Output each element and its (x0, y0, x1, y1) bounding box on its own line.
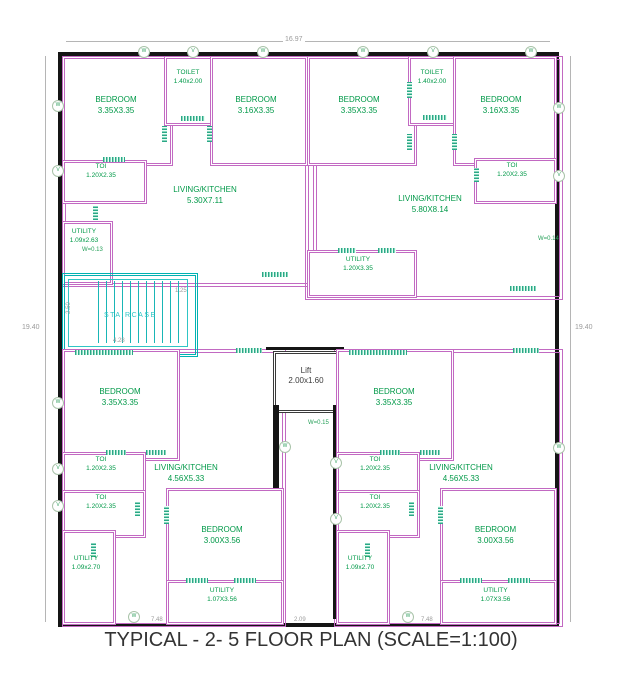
room-name: UTILITY (166, 587, 278, 596)
room-name: LIVING/KITCHEN (375, 193, 485, 204)
room-label-toi: TOI 1.20X2.35 (474, 162, 550, 179)
room-name: TOI (336, 456, 414, 465)
room-name: TOI (336, 494, 414, 503)
room-name: UTILITY (330, 555, 390, 564)
door-window-opening (103, 157, 125, 162)
grid-marker: V (187, 46, 199, 58)
room-size: 3.35X3.35 (66, 105, 166, 116)
room-utility (62, 530, 116, 625)
room-name: UTILITY (307, 256, 409, 265)
door-window-opening (349, 350, 407, 355)
room-size: 1.20X2.35 (336, 503, 414, 512)
grid-marker: V (52, 165, 64, 177)
room-name: BEDROOM (210, 94, 302, 105)
room-label-bedroom: BEDROOM 3.35X3.35 (340, 386, 448, 408)
room-size: 1.09x2.63 (59, 237, 109, 246)
door-window-opening (460, 578, 482, 583)
door-window-opening (452, 134, 457, 150)
grid-marker: V (553, 170, 565, 182)
grid-marker: W (553, 102, 565, 114)
room-name: BEDROOM (440, 524, 551, 535)
room-label-bedroom: BEDROOM 3.00X3.56 (166, 524, 278, 546)
staircase-label: STAIRCASE (104, 312, 157, 319)
wall-width-note: W=0.15 (308, 420, 329, 426)
room-size: 1.07X3.56 (166, 596, 278, 605)
door-window-opening (234, 578, 256, 583)
grid-marker: V (427, 46, 439, 58)
room-label-utility: UTILITY 1.09x2.70 (56, 555, 116, 572)
left-dimension-line (45, 56, 46, 622)
door-window-opening (438, 506, 443, 524)
lift-lobby-wall-top (266, 347, 344, 350)
room-size: 3.35X3.35 (309, 105, 409, 116)
room-label-utility: UTILITY 1.07X3.56 (166, 587, 278, 604)
room-name: LIVING/KITCHEN (130, 462, 242, 473)
room-label-living-kitchen: LIVING/KITCHEN 5.80X8.14 (375, 193, 485, 215)
room-label-toi: TOI 1.20X2.35 (336, 494, 414, 511)
grid-marker: W (402, 611, 414, 623)
grid-marker: W (138, 46, 150, 58)
wall-width-note: W=0.14 (538, 236, 559, 242)
lift-label: Lift 2.00x1.60 (273, 366, 339, 386)
room-size: 5.80X8.14 (375, 204, 485, 215)
room-label-toilet: TOILET 1.40x2.00 (404, 69, 460, 86)
door-window-opening (380, 450, 400, 455)
grid-marker: V (330, 513, 342, 525)
door-window-opening (106, 450, 126, 455)
room-size: 3.35X3.35 (340, 397, 448, 408)
room-name: TOILET (404, 69, 460, 78)
room-name: BEDROOM (66, 94, 166, 105)
door-window-opening (420, 450, 440, 455)
room-label-bedroom: BEDROOM 3.16X3.35 (210, 94, 302, 116)
room-name: BEDROOM (166, 524, 278, 535)
room-name: BEDROOM (453, 94, 549, 105)
grid-marker: W (357, 46, 369, 58)
door-window-opening (338, 248, 356, 253)
stair-depth-dimension: 2.50 (66, 301, 72, 315)
door-window-opening (207, 126, 212, 142)
room-size: 1.09x2.70 (56, 564, 116, 573)
right-dimension-line (570, 56, 571, 622)
grid-marker: W (279, 441, 291, 453)
room-size: 1.20X3.35 (307, 265, 409, 274)
room-size: 3.00X3.56 (440, 535, 551, 546)
right-dimension: 19.40 (573, 324, 595, 331)
room-name: UTILITY (59, 228, 109, 237)
top-dimension: 16.97 (283, 36, 305, 43)
door-window-opening (164, 506, 169, 524)
door-window-opening (378, 248, 396, 253)
grid-marker: V (330, 457, 342, 469)
top-dimension-line (66, 41, 550, 42)
grid-marker: W (52, 397, 64, 409)
grid-marker: W (553, 442, 565, 454)
room-size: 1.07X3.56 (440, 596, 551, 605)
room-label-toi: TOI 1.20X2.35 (62, 494, 140, 511)
drawing-title: TYPICAL - 2- 5 FLOOR PLAN (SCALE=1:100) (0, 629, 622, 652)
grid-marker: W (128, 611, 140, 623)
left-dimension: 19.40 (20, 324, 42, 331)
grid-marker: V (52, 500, 64, 512)
door-window-opening (423, 115, 447, 120)
room-size: 4.56X5.33 (405, 473, 517, 484)
room-label-utility: UTILITY 1.09x2.63 (59, 228, 109, 245)
door-window-opening (236, 348, 262, 353)
room-size: 3.16X3.35 (210, 105, 302, 116)
room-label-bedroom: BEDROOM 3.35X3.35 (309, 94, 409, 116)
room-utility (336, 530, 390, 625)
room-name: UTILITY (440, 587, 551, 596)
room-label-utility: UTILITY 1.20X3.35 (307, 256, 409, 273)
grid-marker: V (52, 463, 64, 475)
room-name: BEDROOM (309, 94, 409, 105)
room-size: 3.16X3.35 (453, 105, 549, 116)
door-window-opening (93, 206, 98, 220)
room-label-bedroom: BEDROOM 3.00X3.56 (440, 524, 551, 546)
room-label-living-kitchen: LIVING/KITCHEN 4.56X5.33 (405, 462, 517, 484)
room-size: 1.20X2.35 (62, 465, 140, 474)
room-label-utility: UTILITY 1.07X3.56 (440, 587, 551, 604)
room-name: TOI (62, 494, 140, 503)
floor-plan-canvas: 16.97 19.40 19.40 7.48 2.09 7.48 (0, 0, 622, 700)
grid-marker: W (525, 46, 537, 58)
room-size: 1.20X2.35 (62, 503, 140, 512)
door-window-opening (513, 348, 539, 353)
room-name: BEDROOM (340, 386, 448, 397)
room-name: TOI (474, 162, 550, 171)
room-name: LIVING/KITCHEN (405, 462, 517, 473)
room-size: 4.56X5.33 (130, 473, 242, 484)
room-name: LIVING/KITCHEN (150, 184, 260, 195)
room-name: Lift (273, 366, 339, 376)
room-label-living-kitchen: LIVING/KITCHEN 4.56X5.33 (130, 462, 242, 484)
door-window-opening (262, 272, 288, 277)
door-window-opening (508, 578, 530, 583)
room-size: 2.00x1.60 (273, 376, 339, 386)
grid-marker: W (52, 100, 64, 112)
room-size: 3.00X3.56 (166, 535, 278, 546)
room-name: TOI (62, 456, 140, 465)
room-label-toi: TOI 1.20X2.35 (62, 163, 140, 180)
wall-width-note: W=0.13 (82, 247, 103, 253)
grid-marker: W (257, 46, 269, 58)
room-size: 1.40x2.00 (160, 78, 216, 87)
room-label-utility: UTILITY 1.09x2.70 (330, 555, 390, 572)
room-size: 1.40x2.00 (404, 78, 460, 87)
room-label-toi: TOI 1.20X2.35 (62, 456, 140, 473)
door-window-opening (162, 126, 167, 142)
room-label-bedroom: BEDROOM 3.35X3.35 (66, 386, 174, 408)
room-name: TOILET (160, 69, 216, 78)
room-size: 1.20X2.35 (62, 172, 140, 181)
room-name: UTILITY (56, 555, 116, 564)
room-name: BEDROOM (66, 386, 174, 397)
door-window-opening (181, 116, 205, 121)
room-label-toi: TOI 1.20X2.35 (336, 456, 414, 473)
room-label-bedroom: BEDROOM 3.35X3.35 (66, 94, 166, 116)
room-name: TOI (62, 163, 140, 172)
room-label-bedroom: BEDROOM 3.16X3.35 (453, 94, 549, 116)
door-window-opening (510, 286, 536, 291)
door-window-opening (407, 134, 412, 150)
door-window-opening (186, 578, 208, 583)
room-size: 1.09x2.70 (330, 564, 390, 573)
room-label-living-kitchen: LIVING/KITCHEN 5.30X7.11 (150, 184, 260, 206)
room-size: 3.35X3.35 (66, 397, 174, 408)
room-label-toilet: TOILET 1.40x2.00 (160, 69, 216, 86)
room-size: 5.30X7.11 (150, 195, 260, 206)
door-window-opening (146, 450, 166, 455)
stair-width-dimension: 1.25 (174, 288, 188, 294)
door-window-opening (75, 350, 133, 355)
room-size: 1.20X2.35 (336, 465, 414, 474)
stair-length-dimension: 4.28 (112, 338, 126, 344)
room-size: 1.20X2.35 (474, 171, 550, 180)
